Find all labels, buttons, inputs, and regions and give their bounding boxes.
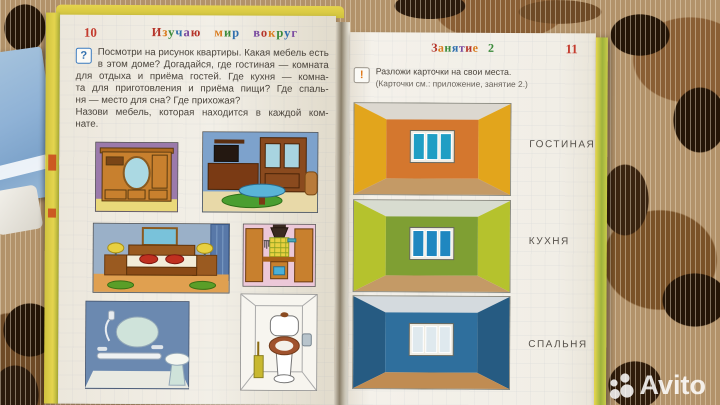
left-page-number: 10 (84, 25, 97, 41)
instruction-line: Разложи карточки на свои места. (354, 66, 589, 79)
illustration-bedroom (93, 223, 230, 294)
right-page: Занятие 2 11 ! Разложи карточки на свои … (348, 32, 596, 405)
question-icon: ? (76, 48, 92, 64)
right-page-title: Занятие 2 (390, 40, 536, 56)
right-page-instruction: ! Разложи карточки на свои места. (Карто… (354, 66, 589, 90)
photo-of-open-book: 10 Изучаю мир вокруг ? Посмотри на рисун… (0, 0, 720, 405)
illustration-hallway (95, 142, 178, 212)
bookmark-tag (48, 209, 56, 218)
left-page: 10 Изучаю мир вокруг ? Посмотри на рисун… (58, 15, 336, 405)
left-page-instruction: ? Посмотри на рисунок квартиры. Какая ме… (75, 47, 328, 132)
exclamation-icon: ! (354, 67, 370, 83)
avito-wordmark: Avito (640, 370, 707, 401)
room-card-kitchen (353, 199, 512, 298)
white-object-left (0, 184, 43, 235)
room-card-bedroom (352, 295, 511, 395)
instruction-line: (Карточки см.: приложение, занятие 2.) (354, 78, 589, 91)
instruction-line: нате. (75, 119, 328, 132)
avito-logo-icon (609, 371, 635, 401)
illustration-toilet (240, 294, 318, 391)
avito-watermark: Avito (609, 370, 707, 401)
room-label-bedroom: СПАЛЬНЯ (528, 339, 594, 350)
book-right-cover-edge (594, 37, 608, 405)
left-page-title: Изучаю мир вокруг (120, 25, 330, 41)
room-card-living-room (353, 102, 512, 201)
illustration-living-room (202, 131, 318, 213)
instruction-line: Назови мебель, которая находится в каждо… (75, 107, 328, 120)
room-label-kitchen: КУХНЯ (529, 236, 595, 247)
open-book: 10 Изучаю мир вокруг ? Посмотри на рисун… (44, 5, 608, 405)
right-page-number: 11 (565, 41, 577, 57)
illustration-kitchen (243, 224, 316, 287)
illustration-bathroom (85, 301, 189, 390)
room-label-living-room: ГОСТИНАЯ (529, 139, 595, 150)
bookmark-tag (48, 155, 56, 171)
